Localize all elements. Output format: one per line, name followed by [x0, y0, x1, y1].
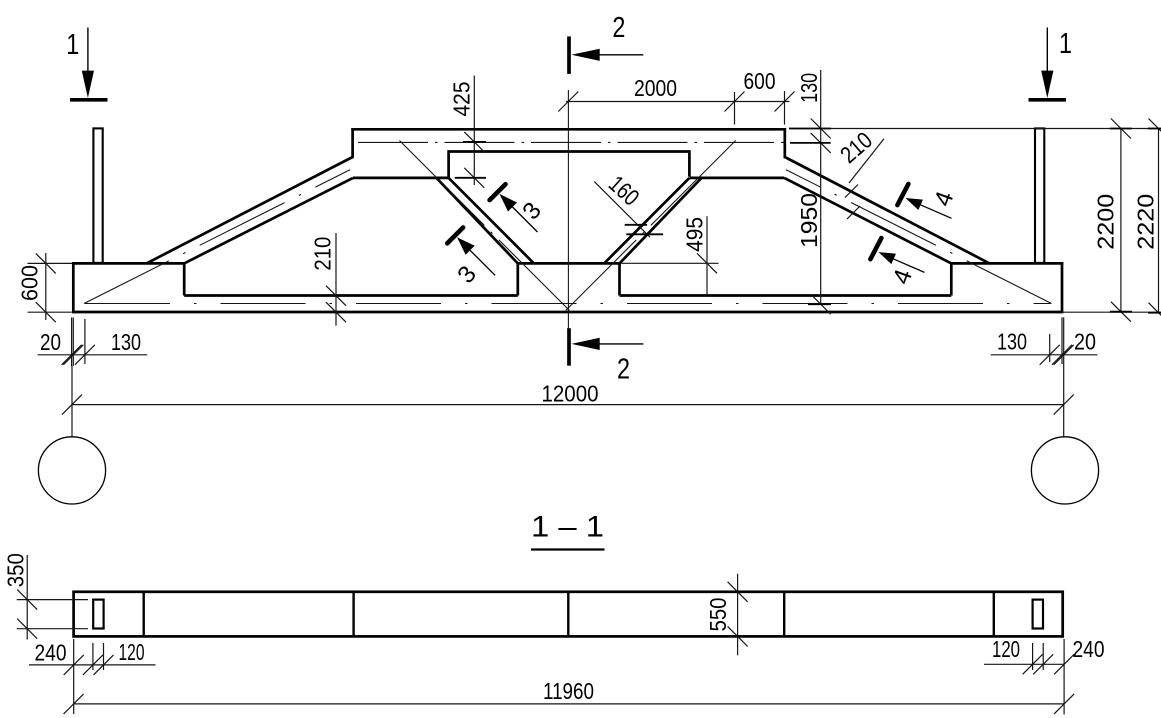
- svg-text:20: 20: [1074, 329, 1096, 355]
- svg-text:2: 2: [612, 12, 625, 44]
- svg-text:600: 600: [17, 265, 43, 301]
- svg-text:350: 350: [2, 553, 28, 587]
- svg-text:12000: 12000: [542, 381, 599, 407]
- svg-text:550: 550: [705, 598, 731, 632]
- svg-text:130: 130: [111, 329, 141, 355]
- svg-text:120: 120: [992, 636, 1020, 662]
- svg-text:2: 2: [617, 353, 630, 385]
- svg-text:2220: 2220: [1133, 194, 1159, 250]
- svg-text:600: 600: [744, 68, 776, 94]
- svg-text:120: 120: [119, 639, 145, 665]
- svg-text:1: 1: [1059, 28, 1072, 60]
- svg-text:1950: 1950: [796, 193, 822, 248]
- svg-text:2000: 2000: [634, 75, 677, 101]
- svg-text:240: 240: [1073, 636, 1105, 662]
- svg-text:130: 130: [997, 329, 1027, 355]
- svg-text:210: 210: [310, 237, 336, 271]
- svg-text:2200: 2200: [1092, 194, 1118, 250]
- svg-text:240: 240: [35, 639, 67, 665]
- svg-text:11960: 11960: [543, 678, 594, 704]
- svg-text:20: 20: [40, 329, 61, 355]
- svg-text:130: 130: [796, 73, 822, 103]
- svg-text:495: 495: [681, 217, 707, 252]
- svg-text:1: 1: [66, 29, 79, 61]
- svg-text:425: 425: [448, 82, 474, 117]
- svg-text:1 – 1: 1 – 1: [531, 511, 604, 544]
